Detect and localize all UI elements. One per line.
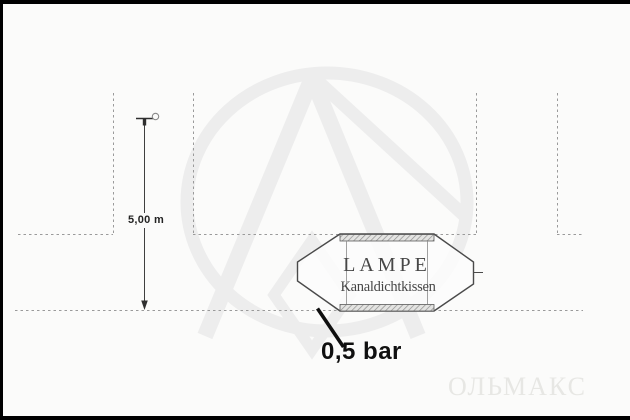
dimension-arrowhead [141, 301, 148, 311]
diagram-canvas [0, 0, 630, 420]
dimension-top-stem [143, 119, 146, 126]
product-title-label: LAMPE [343, 254, 431, 277]
watermark-text: ОЛЬМАКС [448, 372, 587, 402]
product-subtitle-label: Kanaldichtkissen [340, 279, 435, 296]
frame-border-left [0, 0, 3, 420]
frame-border-bottom [0, 416, 630, 420]
hatch-band-bottom [340, 305, 434, 312]
frame-border-top [0, 0, 630, 4]
degree-circle-marker [152, 113, 158, 119]
hatch-band-top [340, 235, 434, 242]
diagram-stage: 5,00 m LAMPE Kanaldichtkissen 0,5 bar ОЛ… [0, 0, 630, 420]
depth-dimension-line [136, 113, 159, 310]
depth-label: 5,00 m [128, 214, 164, 226]
pressure-label: 0,5 bar [321, 338, 402, 366]
